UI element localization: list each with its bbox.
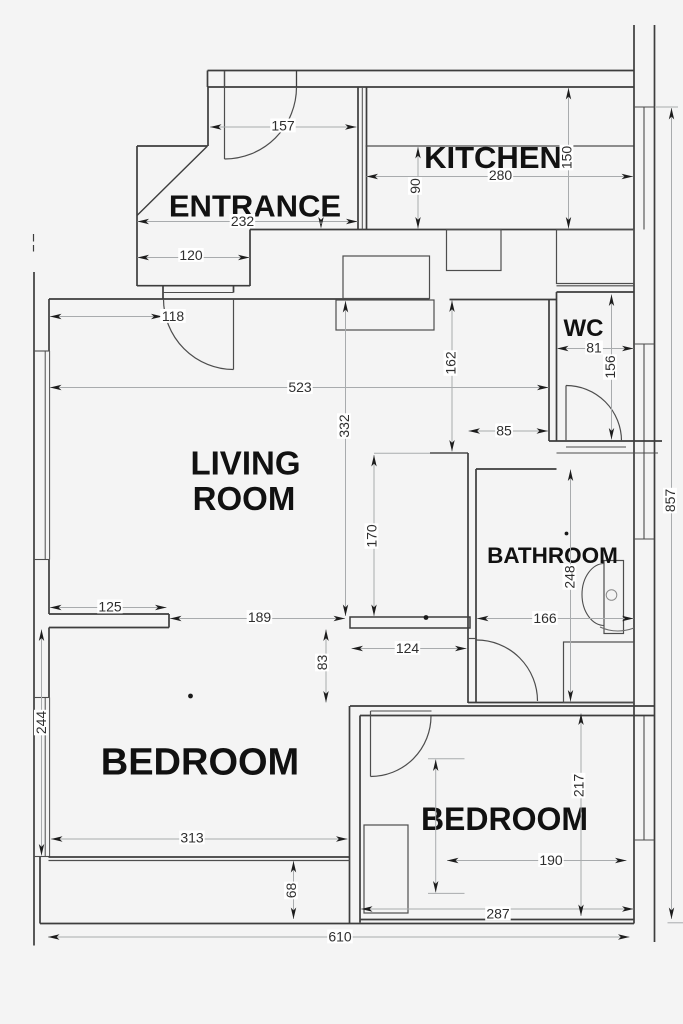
svg-text:156: 156 [602,355,618,379]
svg-text:LIVING: LIVING [190,444,300,481]
svg-text:90: 90 [407,178,423,194]
svg-text:85: 85 [496,422,512,438]
svg-text:170: 170 [363,524,379,548]
svg-text:81: 81 [586,339,602,355]
svg-text:857: 857 [662,489,678,513]
svg-text:68: 68 [283,883,299,899]
svg-text:232: 232 [231,213,255,229]
svg-text:523: 523 [288,379,312,395]
svg-text:150: 150 [558,146,574,170]
svg-text:83: 83 [314,655,330,671]
svg-text:124: 124 [396,640,420,656]
svg-text:248: 248 [561,565,577,589]
svg-text:610: 610 [328,928,352,944]
svg-text:157: 157 [271,117,295,133]
svg-text:BEDROOM: BEDROOM [421,801,588,837]
svg-text:244: 244 [33,711,49,735]
svg-text:ROOM: ROOM [193,480,296,517]
svg-text:BATHROOM: BATHROOM [487,543,618,568]
svg-text:125: 125 [98,598,122,614]
svg-text:217: 217 [570,774,586,798]
svg-text:162: 162 [442,351,458,375]
svg-text:332: 332 [336,414,352,438]
svg-text:190: 190 [539,852,563,868]
svg-text:118: 118 [162,308,185,324]
svg-text:WC: WC [564,315,604,342]
svg-text:280: 280 [489,167,513,183]
svg-text:BEDROOM: BEDROOM [101,741,299,783]
svg-text:313: 313 [180,829,204,845]
svg-text:120: 120 [179,247,203,263]
svg-text:189: 189 [248,609,272,625]
svg-text:166: 166 [533,610,557,626]
svg-text:287: 287 [486,905,510,921]
